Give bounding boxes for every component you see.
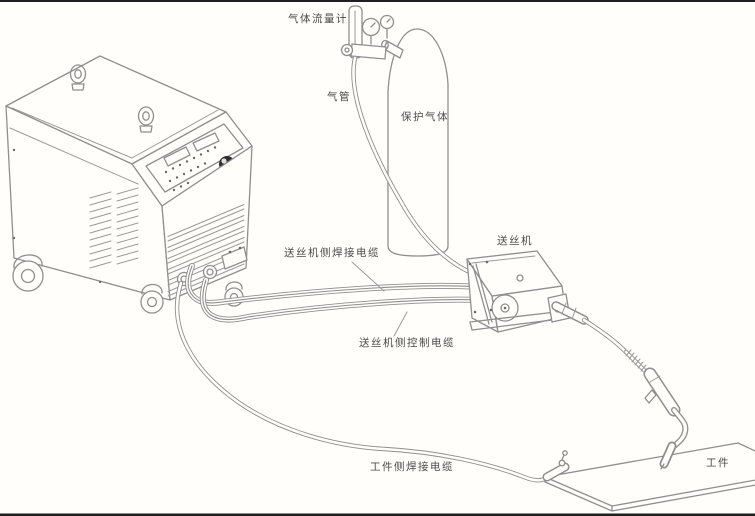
welding-power-source-drawing <box>6 56 252 313</box>
welding-torch-drawing <box>556 303 685 469</box>
workpiece-plate-drawing <box>545 443 755 511</box>
label-gas-flowmeter: 气体流量计 <box>288 13 348 25</box>
torch-trigger <box>645 390 656 403</box>
top-border-line <box>0 0 755 2</box>
leader-line-control-cable <box>394 312 407 336</box>
gas-flowmeter-drawing <box>342 6 394 59</box>
label-gas-hose: 气管 <box>327 91 351 103</box>
label-feeder-side-control-cable: 送丝机侧控制电缆 <box>359 337 455 349</box>
wire-feeder-drawing <box>467 251 570 332</box>
label-shielding-gas: 保护气体 <box>401 111 449 123</box>
torch-handle <box>645 374 674 410</box>
label-workpiece-side-welding-cable: 工件侧焊接电缆 <box>370 461 454 473</box>
diagram-page: 气体流量计 气管 保护气体 送丝机 送丝机侧焊接电缆 送丝机侧控制电缆 工件侧焊… <box>0 0 755 516</box>
label-wire-feeder: 送丝机 <box>497 235 533 247</box>
label-workpiece: 工件 <box>706 457 730 469</box>
label-feeder-side-welding-cable: 送丝机侧焊接电缆 <box>284 247 380 259</box>
